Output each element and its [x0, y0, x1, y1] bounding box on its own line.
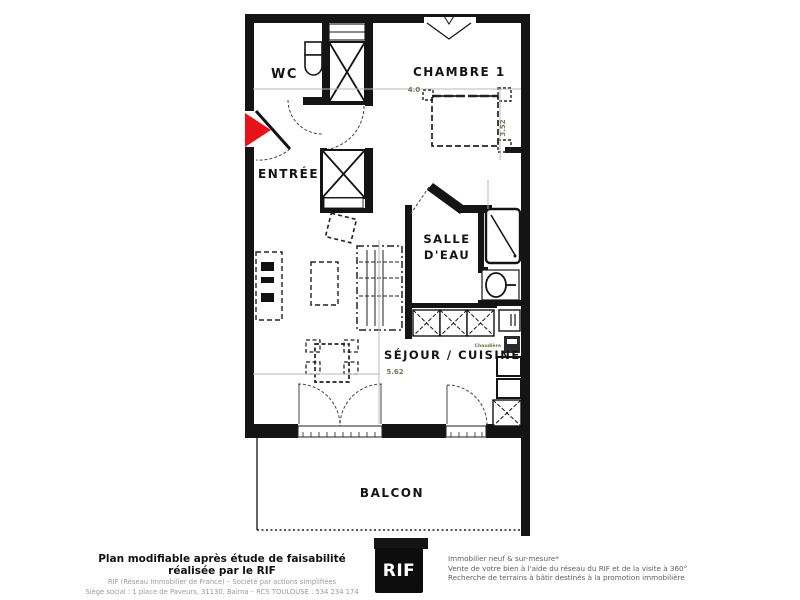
footer-right-line3: Recherche de terrains à bâtir destinés à…	[448, 573, 687, 583]
footer-right-line2: Vente de votre bien à l'aide du réseau d…	[448, 564, 687, 574]
dining-table-icon	[306, 340, 358, 382]
footer-title: Plan modifiable après étude de faisabili…	[82, 553, 362, 577]
room-label-entree: ENTRÉE	[258, 166, 319, 181]
appliance-icons	[493, 357, 521, 426]
footer-company-line: RIF (Réseau Immobilier de France) – Soci…	[82, 578, 362, 587]
dimension-chambre-width: 4.0	[408, 86, 421, 94]
door-leaves	[299, 384, 447, 424]
toilet-icon	[305, 42, 322, 75]
floor-plan: Chaudière	[0, 0, 800, 600]
dimension-chambre-depth: 3.52	[499, 119, 507, 136]
room-label-chambre: CHAMBRE 1	[413, 65, 506, 79]
page: Chaudière	[0, 0, 800, 600]
closet-icon	[322, 150, 365, 208]
room-label-salle-eau-2: D'EAU	[424, 248, 470, 262]
sink-unit-icon	[499, 310, 520, 331]
footer-right-line1: Immobilier neuf & sur-mesure*	[448, 554, 687, 564]
rif-logo-text: RIF	[383, 561, 416, 581]
room-label-salle-eau-1: SALLE	[423, 232, 470, 246]
tv-bench-icon	[256, 252, 282, 320]
toilet-icon	[482, 270, 519, 300]
entrance-arrow-icon	[245, 113, 271, 147]
bed-icon	[423, 88, 511, 152]
room-label-sejour: SÉJOUR / CUISINE	[384, 347, 521, 362]
kitchen-cabinets-icon	[413, 310, 494, 336]
dimension-sejour-width: 5.62	[386, 368, 403, 376]
room-label-balcon: BALCON	[360, 486, 424, 500]
shower-icon	[486, 209, 520, 263]
door-arcs	[288, 100, 487, 426]
rif-logo: RIF	[375, 548, 423, 593]
footer-right-block: Immobilier neuf & sur-mesure* Vente de v…	[448, 554, 687, 583]
room-label-wc: WC	[271, 67, 298, 82]
balcony-outline	[257, 438, 521, 530]
stool-icon	[325, 213, 356, 243]
coffee-table-icon	[311, 262, 338, 305]
closet-icon	[329, 24, 365, 102]
footer-address-line: Siège social : 1 place de Paveurs, 31130…	[82, 588, 362, 597]
footer-left-block: Plan modifiable après étude de faisabili…	[82, 553, 362, 596]
